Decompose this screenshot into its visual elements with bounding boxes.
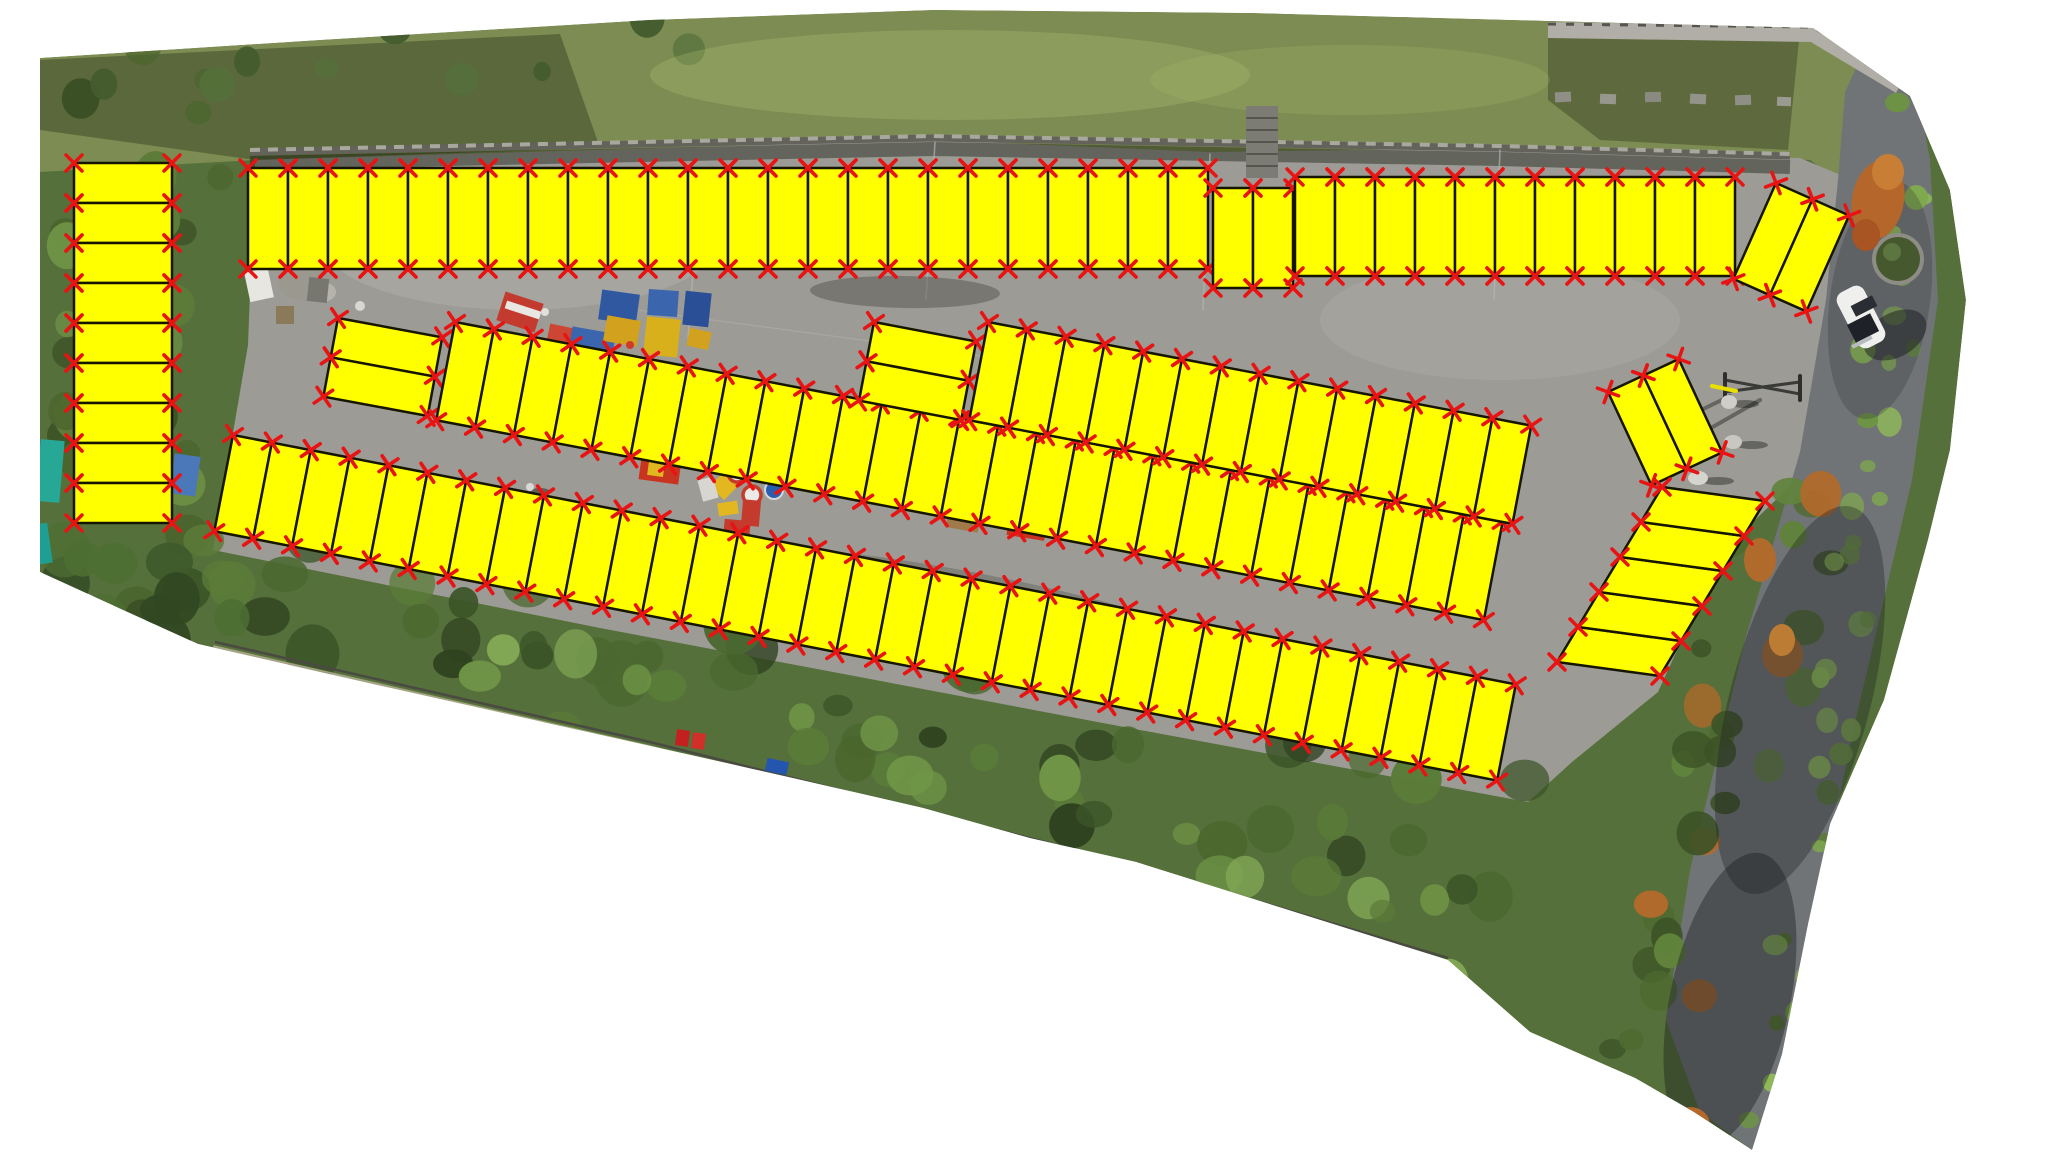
bush bbox=[1291, 856, 1342, 896]
pallet-blue-stack-2 bbox=[682, 291, 711, 328]
tree-island-highlight bbox=[1883, 243, 1901, 261]
bush bbox=[1370, 900, 1396, 923]
bush bbox=[554, 629, 597, 678]
bush bbox=[1076, 801, 1113, 828]
parking-bay-top-row-east-1[interactable] bbox=[1295, 177, 1335, 276]
parking-bay-top-row-east-8[interactable] bbox=[1575, 177, 1615, 276]
bush bbox=[1173, 823, 1201, 845]
bush bbox=[77, 594, 128, 645]
parking-bay-top-row-main-9[interactable] bbox=[568, 168, 608, 269]
parking-bay-top-row-east-11[interactable] bbox=[1695, 177, 1735, 276]
bush bbox=[110, 625, 141, 659]
top-row-main bbox=[240, 160, 1216, 277]
bush bbox=[782, 802, 823, 843]
bush bbox=[1247, 805, 1294, 852]
parking-bay-top-row-main-21[interactable] bbox=[1048, 168, 1088, 269]
bush bbox=[570, 769, 612, 803]
bush bbox=[1813, 921, 1831, 934]
parking-bay-top-row-main-1[interactable] bbox=[248, 168, 288, 269]
bush bbox=[1039, 755, 1081, 802]
parking-bay-top-row-east-10[interactable] bbox=[1655, 177, 1695, 276]
pallet-blue-stack-1 bbox=[647, 289, 679, 317]
bush bbox=[1230, 902, 1258, 928]
parking-bay-top-row-main-7[interactable] bbox=[488, 168, 528, 269]
bush bbox=[1447, 874, 1478, 904]
bush bbox=[379, 17, 411, 44]
orthophoto-scene bbox=[23, 0, 1966, 1152]
bush bbox=[860, 715, 898, 751]
parking-bay-top-row-main-18[interactable] bbox=[928, 168, 968, 269]
bush bbox=[252, 745, 300, 789]
bush bbox=[970, 744, 998, 772]
parking-bay-top-row-main-17[interactable] bbox=[888, 168, 928, 269]
autumn-tree-top-right-2 bbox=[1872, 154, 1904, 190]
parking-bay-top-row-main-12[interactable] bbox=[688, 168, 728, 269]
parking-bay-top-row-main-6[interactable] bbox=[448, 168, 488, 269]
bush bbox=[1872, 492, 1888, 506]
bush bbox=[262, 556, 309, 592]
bush bbox=[710, 652, 758, 691]
bush bbox=[1672, 731, 1714, 768]
bush bbox=[1164, 944, 1198, 976]
parking-bay-top-row-east-3[interactable] bbox=[1375, 177, 1415, 276]
grass-light-patch-2 bbox=[1150, 45, 1550, 115]
parking-bay-left-column-9[interactable] bbox=[74, 483, 172, 523]
bush bbox=[1390, 824, 1427, 856]
bush bbox=[497, 718, 546, 775]
memorial-stone-1 bbox=[1555, 92, 1572, 103]
bush bbox=[713, 864, 757, 897]
screenshot-stage bbox=[0, 0, 2048, 1152]
autumn-bush-slope-2 bbox=[1769, 624, 1795, 656]
parking-bay-top-row-main-3[interactable] bbox=[328, 168, 368, 269]
bush bbox=[740, 776, 766, 798]
bush bbox=[823, 695, 853, 717]
top-row-east bbox=[1287, 169, 1743, 284]
parking-bay-top-row-main-15[interactable] bbox=[808, 168, 848, 269]
bush bbox=[615, 837, 655, 879]
bush bbox=[1619, 1029, 1644, 1051]
bush bbox=[1796, 966, 1817, 989]
bush bbox=[441, 618, 480, 662]
bush bbox=[336, 728, 364, 758]
parking-bay-top-row-main-2[interactable] bbox=[288, 168, 328, 269]
bush bbox=[623, 664, 652, 695]
parking-bay-top-row-main-4[interactable] bbox=[368, 168, 408, 269]
tree-island-bush bbox=[1876, 237, 1920, 281]
bush bbox=[523, 785, 568, 835]
bush bbox=[1691, 639, 1711, 657]
bush bbox=[1941, 81, 1961, 96]
blue-tarp-pallet bbox=[169, 453, 200, 496]
top-row-step-pair bbox=[1205, 180, 1301, 296]
bush bbox=[306, 737, 353, 770]
bush bbox=[1226, 856, 1265, 898]
pallet-white-dot bbox=[541, 308, 549, 316]
bush bbox=[402, 604, 439, 639]
parking-bay-top-row-main-24[interactable] bbox=[1168, 168, 1208, 269]
bush bbox=[606, 754, 658, 791]
red-bin-2 bbox=[691, 732, 706, 750]
memorial-stone-4 bbox=[1690, 94, 1707, 105]
bush bbox=[444, 63, 479, 96]
bag-1 bbox=[1721, 395, 1737, 409]
parking-bay-top-row-east-4[interactable] bbox=[1415, 177, 1455, 276]
white-bucket bbox=[355, 301, 365, 311]
bush bbox=[1677, 811, 1719, 855]
bush bbox=[1367, 992, 1399, 1019]
bush bbox=[533, 62, 550, 81]
red-bin-1 bbox=[675, 729, 690, 747]
parking-bay-left-column-5[interactable] bbox=[74, 323, 172, 363]
parking-bay-top-row-main-19[interactable] bbox=[968, 168, 1008, 269]
pallet-red-dot bbox=[626, 341, 634, 349]
parking-bay-top-row-main-5[interactable] bbox=[408, 168, 448, 269]
bush bbox=[185, 101, 211, 124]
parking-bay-left-column-6[interactable] bbox=[74, 363, 172, 403]
bush bbox=[1323, 939, 1361, 976]
parking-bay-top-row-main-8[interactable] bbox=[528, 168, 568, 269]
orthophoto-canvas bbox=[0, 0, 2048, 1152]
bush bbox=[993, 911, 1036, 962]
bush bbox=[207, 164, 233, 191]
bush bbox=[1317, 804, 1348, 840]
parking-bay-top-row-main-23[interactable] bbox=[1128, 168, 1168, 269]
bush bbox=[124, 25, 162, 65]
parking-bay-top-row-main-14[interactable] bbox=[768, 168, 808, 269]
bush bbox=[1048, 861, 1091, 910]
memorial-stone-5 bbox=[1735, 95, 1751, 106]
parking-bay-top-row-east-2[interactable] bbox=[1335, 177, 1375, 276]
parking-bay-top-row-east-9[interactable] bbox=[1615, 177, 1655, 276]
bush bbox=[459, 661, 501, 692]
bush bbox=[23, 80, 40, 100]
parking-bay-left-column-2[interactable] bbox=[74, 203, 172, 243]
sign-yellow-board bbox=[717, 501, 739, 517]
wooden-crate bbox=[276, 306, 294, 324]
parking-bay-left-column-3[interactable] bbox=[74, 243, 172, 283]
bush bbox=[315, 59, 340, 78]
memorial-stone-2 bbox=[1600, 94, 1616, 105]
autumn-bush-bottom-2 bbox=[1624, 1128, 1656, 1152]
parking-bay-top-row-step-pair-2[interactable] bbox=[1253, 188, 1293, 288]
bush bbox=[149, 636, 179, 661]
bush bbox=[1860, 460, 1876, 472]
autumn-bush-slope-1 bbox=[1744, 538, 1776, 582]
bush bbox=[1817, 876, 1837, 893]
bush bbox=[214, 599, 249, 637]
bush bbox=[347, 691, 399, 733]
bush bbox=[788, 728, 830, 766]
parking-bay-top-row-main-22[interactable] bbox=[1088, 168, 1128, 269]
bush bbox=[202, 560, 244, 596]
bush bbox=[1491, 1022, 1529, 1053]
bush bbox=[887, 756, 934, 796]
parking-bay-top-row-east-7[interactable] bbox=[1535, 177, 1575, 276]
bush bbox=[1781, 1063, 1799, 1079]
parking-bay-top-row-main-13[interactable] bbox=[728, 168, 768, 269]
bush bbox=[1420, 884, 1449, 916]
parking-bay-top-row-east-5[interactable] bbox=[1455, 177, 1495, 276]
bush bbox=[1885, 93, 1910, 113]
bush bbox=[92, 543, 138, 585]
person bbox=[526, 483, 534, 491]
parking-bay-top-row-east-6[interactable] bbox=[1495, 177, 1535, 276]
parking-bay-left-column-4[interactable] bbox=[74, 283, 172, 323]
memorial-stone-3 bbox=[1645, 92, 1661, 103]
bush bbox=[1500, 760, 1549, 802]
bush bbox=[1403, 1012, 1439, 1046]
bush bbox=[1075, 730, 1117, 761]
bush bbox=[140, 612, 191, 671]
bush bbox=[1762, 1115, 1780, 1131]
memorial-stone-6 bbox=[1777, 97, 1791, 106]
parking-bay-left-column-8[interactable] bbox=[74, 443, 172, 483]
bush bbox=[520, 631, 548, 663]
bush bbox=[1634, 891, 1668, 918]
left-column bbox=[66, 155, 180, 531]
yellow-machine bbox=[643, 316, 681, 357]
bush bbox=[949, 883, 978, 914]
gray-box bbox=[307, 277, 329, 303]
bush bbox=[789, 703, 815, 731]
bush bbox=[487, 634, 520, 665]
autumn-hedge-top bbox=[1925, 106, 1945, 134]
bush bbox=[1930, 120, 1949, 136]
parking-bay-top-row-main-10[interactable] bbox=[608, 168, 648, 269]
bush bbox=[919, 727, 947, 748]
bush bbox=[1112, 726, 1144, 763]
parking-bay-top-row-main-20[interactable] bbox=[1008, 168, 1048, 269]
parking-bay-top-row-main-11[interactable] bbox=[648, 168, 688, 269]
autumn-tree-top-right-3 bbox=[1852, 219, 1880, 251]
parking-bay-top-row-step-pair-1[interactable] bbox=[1213, 188, 1253, 288]
bush bbox=[1429, 959, 1468, 1004]
bush bbox=[234, 46, 260, 76]
bush bbox=[830, 868, 880, 909]
bush bbox=[199, 67, 235, 102]
parking-bay-left-column-1[interactable] bbox=[74, 163, 172, 203]
bush bbox=[449, 587, 479, 619]
bush bbox=[91, 68, 118, 99]
parking-bay-left-column-7[interactable] bbox=[74, 403, 172, 443]
autumn-bush-bottom-1 bbox=[1670, 1107, 1710, 1143]
parking-bay-top-row-main-16[interactable] bbox=[848, 168, 888, 269]
bush bbox=[646, 670, 686, 702]
bush bbox=[32, 0, 83, 24]
